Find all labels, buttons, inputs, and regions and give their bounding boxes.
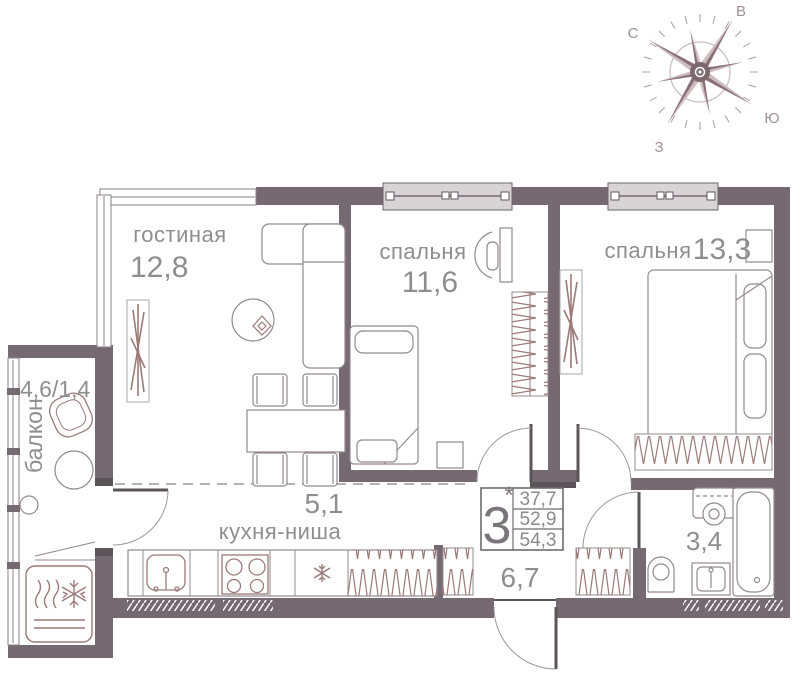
balcony-area: 4,6/1,4 [20, 376, 91, 402]
room-living: гостиная 12,8 [130, 222, 227, 284]
compass-south-label: Ю [764, 110, 779, 127]
floor-plan: С В Ю З [0, 0, 800, 673]
desk-chair-icon-bedroom1 [475, 228, 512, 282]
bedroom1-label: спальня [379, 239, 466, 264]
dining-table-icon [247, 410, 345, 452]
washing-machine-icon [693, 488, 735, 525]
bed-icon-bedroom2 [648, 270, 772, 442]
wardrobe-icon-bedroom2 [635, 434, 772, 470]
kitchen-cabinet-hatch [348, 550, 437, 596]
apartment-stamp: 3 * 37,7 52,9 54,3 [481, 482, 563, 555]
living-area: 12,8 [130, 251, 188, 284]
plant-icon-bedroom2 [560, 270, 582, 374]
hallway-area: 6,7 [501, 562, 540, 593]
stamp-area-main: 52,9 [520, 509, 557, 530]
bedroom2-label: спальня [604, 238, 691, 263]
balcony-stool-icon [20, 496, 38, 514]
stamp-asterisk: * [504, 482, 513, 509]
room-bedroom2: спальня 13,3 [604, 233, 751, 266]
coffee-table-icon [232, 299, 274, 341]
wardrobe-icon-bedroom1 [512, 292, 548, 396]
balcony-label: балкон [21, 398, 47, 473]
bedroom1-window [383, 183, 512, 210]
bedroom2-door [578, 424, 631, 482]
stamp-area-living: 37,7 [520, 489, 557, 510]
kitchen-label: кухня-ниша [219, 519, 342, 544]
kitchen-area: 5,1 [305, 488, 344, 519]
bedroom2-area: 13,3 [693, 233, 751, 266]
stamp-area-total: 54,3 [520, 530, 557, 551]
compass-icon [642, 14, 758, 130]
bathroom-sink-icon [692, 563, 730, 595]
balcony-door [113, 490, 168, 545]
plant-icon-living [127, 300, 149, 402]
compass-north-label: С [628, 25, 639, 42]
bathroom-door [583, 492, 639, 548]
sofa-icon [262, 224, 345, 368]
room-bedroom1: спальня 11,6 [379, 239, 466, 299]
balcony-table-icon [55, 451, 93, 489]
balcony-glazing [7, 358, 20, 645]
ac-unit-icon [26, 566, 92, 642]
kitchen-counter [128, 550, 437, 596]
bedroom2-window [608, 183, 718, 210]
balcony-door-opening [95, 486, 113, 548]
wardrobe-icon-hall-left [443, 548, 473, 595]
bedroom1-door [477, 424, 531, 482]
living-label: гостиная [133, 222, 226, 247]
bathroom-area: 3,4 [686, 526, 722, 556]
bedroom1-area: 11,6 [402, 266, 458, 299]
compass-east-label: В [736, 3, 746, 20]
floor-plan-canvas: С В Ю З [0, 0, 800, 673]
room-kitchen: 5,1 кухня-ниша [219, 488, 344, 544]
bathtub-icon [733, 488, 774, 596]
compass-west-label: З [654, 139, 663, 156]
wardrobe-icon-hall-right [576, 548, 630, 595]
toilet-icon [648, 557, 674, 592]
bed-icon-bedroom1 [350, 326, 418, 464]
nightstand-icon-bedroom1 [437, 442, 463, 468]
